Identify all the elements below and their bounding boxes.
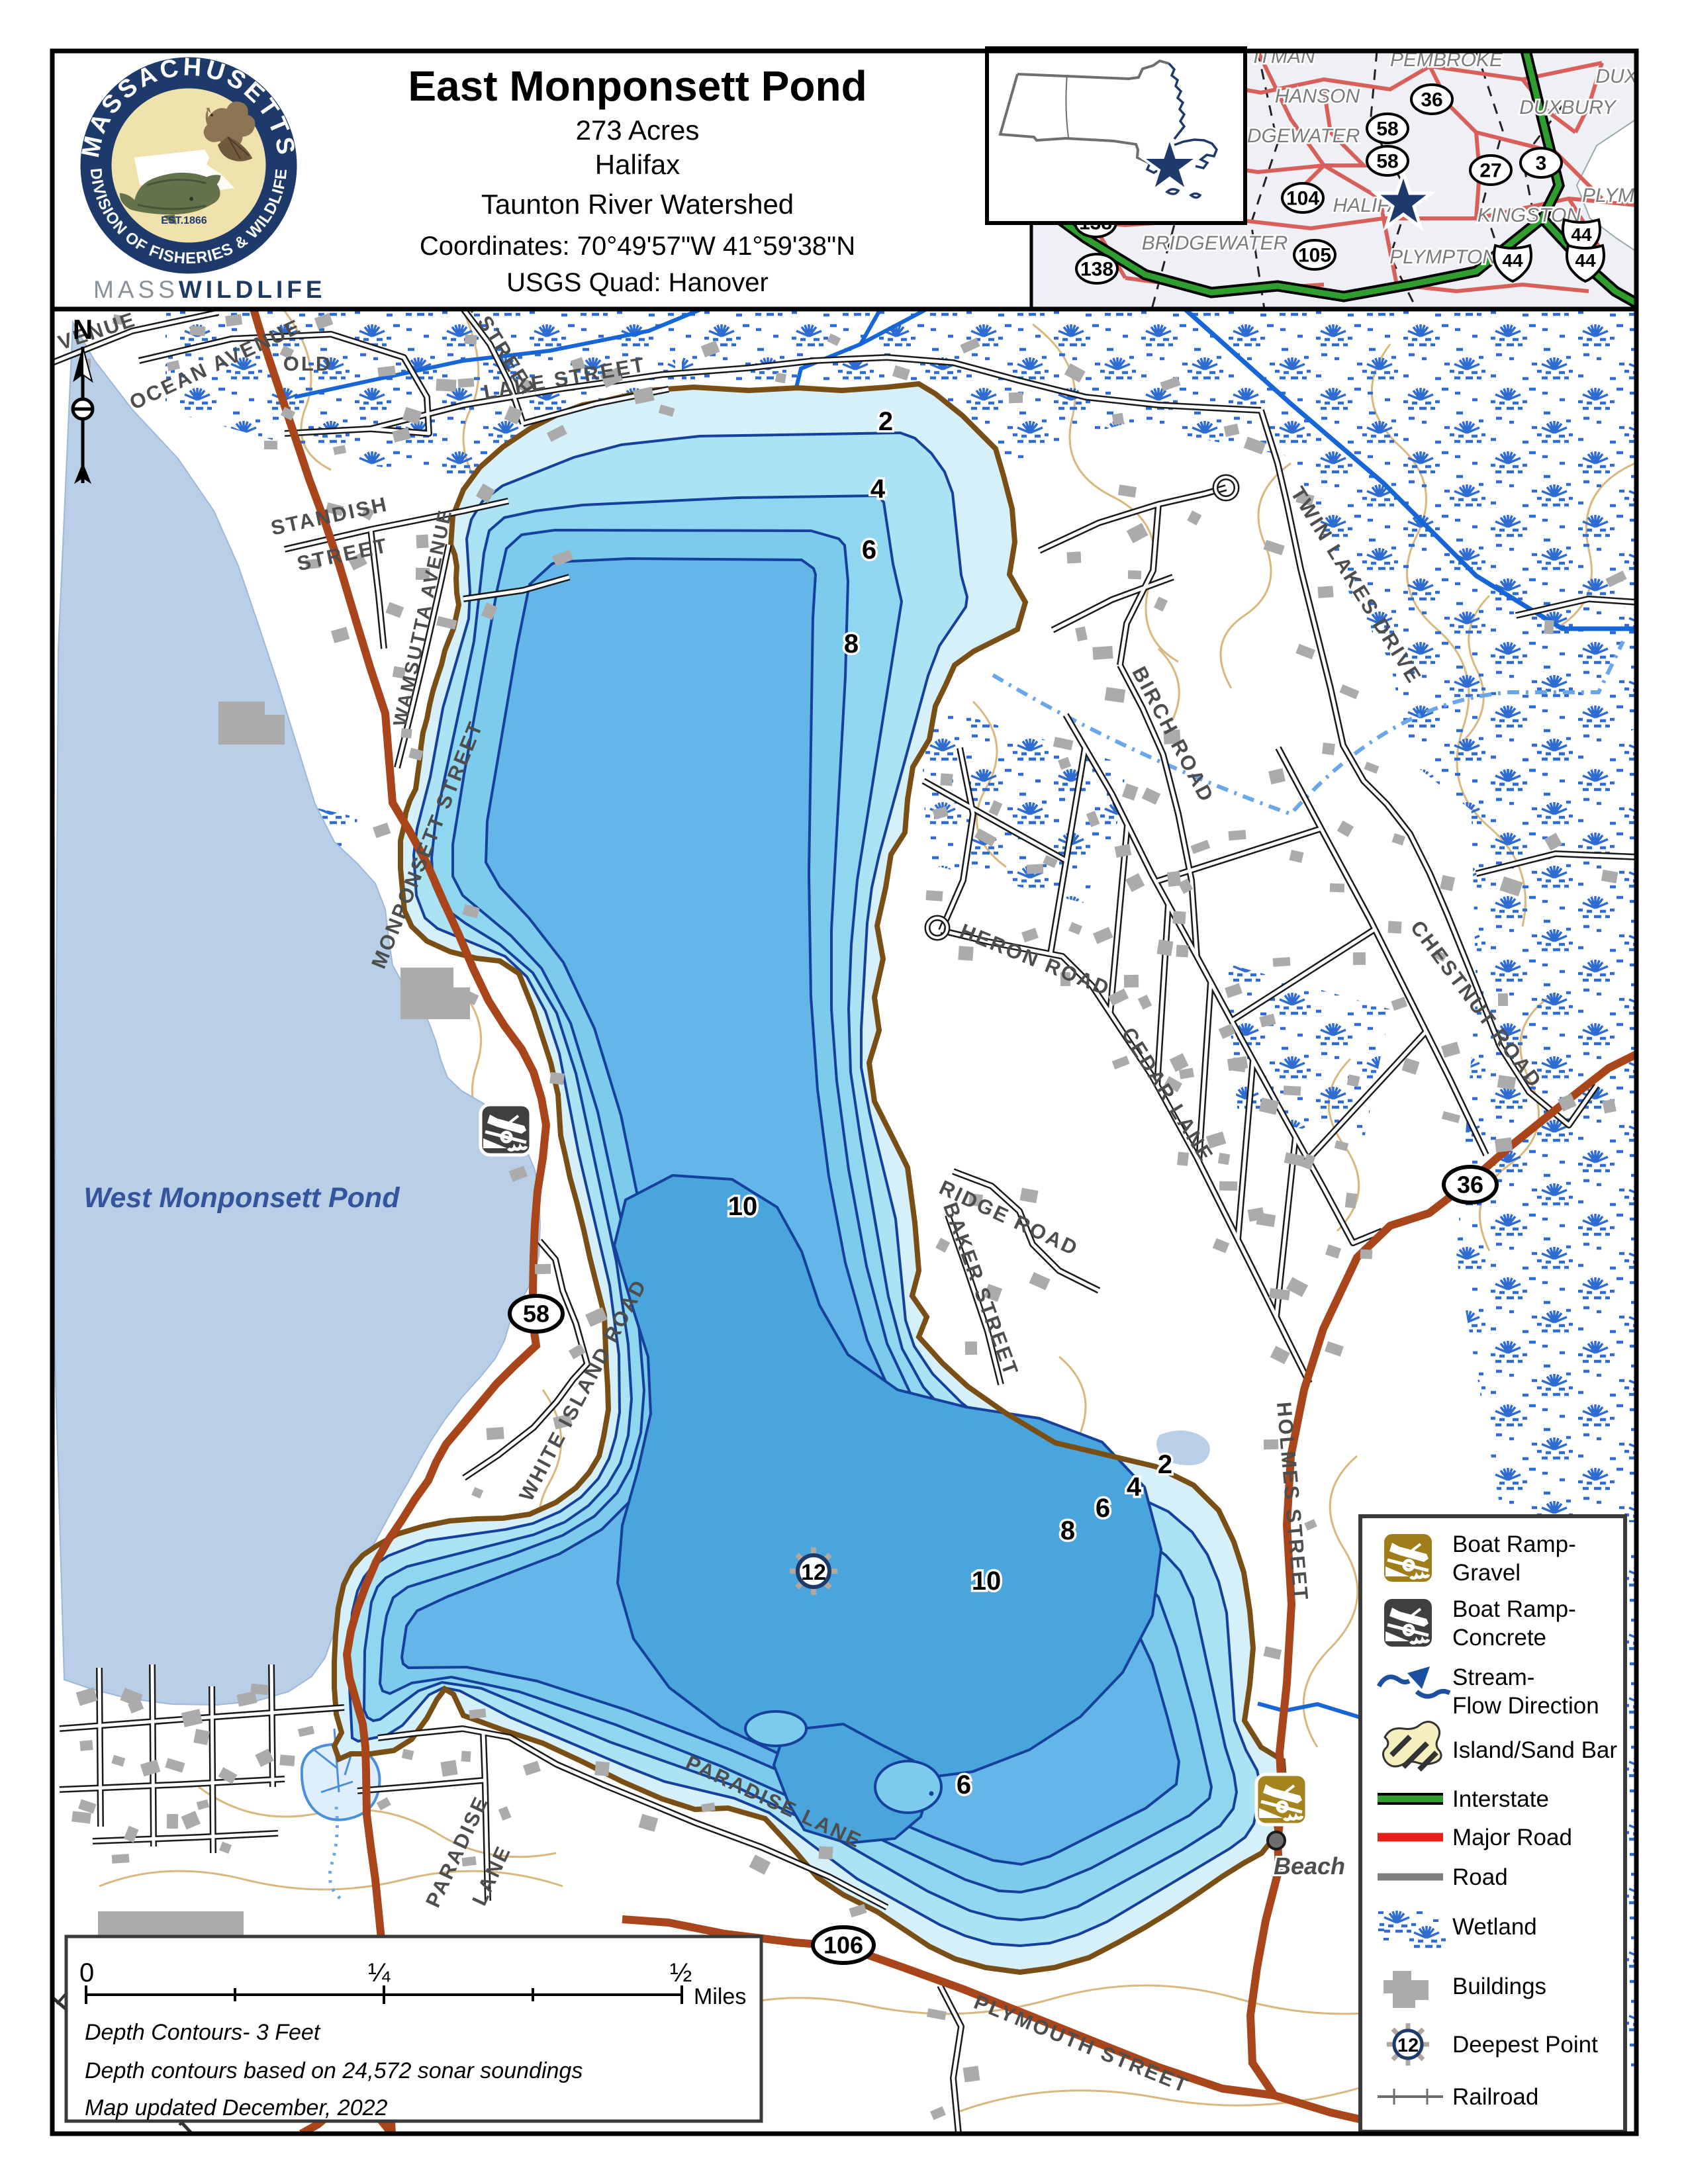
svg-text:Coordinates: 70°49'57"W 41°59': Coordinates: 70°49'57"W 41°59'38"N [420,232,855,261]
svg-text:Depth contours based on 24,572: Depth contours based on 24,572 sonar sou… [85,2058,583,2083]
svg-text:44: 44 [1571,224,1592,245]
svg-text:IDGEWATER: IDGEWATER [1242,125,1360,147]
svg-text:Deepest Point: Deepest Point [1452,2032,1598,2058]
svg-text:Halifax: Halifax [595,149,680,180]
svg-text:44: 44 [1502,250,1523,271]
svg-text:Island/Sand Bar: Island/Sand Bar [1452,1737,1617,1763]
svg-text:2: 2 [878,407,893,436]
svg-text:10: 10 [972,1567,1002,1596]
svg-text:8: 8 [844,629,859,659]
svg-text:Major Road: Major Road [1452,1825,1572,1850]
svg-text:36: 36 [1457,1171,1483,1199]
svg-text:Interstate: Interstate [1452,1786,1549,1812]
svg-text:6: 6 [957,1770,971,1799]
svg-text:½: ½ [670,1958,692,1987]
svg-text:4: 4 [870,475,886,504]
svg-text:EST.1866: EST.1866 [161,215,207,226]
svg-text:6: 6 [862,535,876,565]
svg-text:Buildings: Buildings [1452,1974,1546,1999]
svg-text:Wetland: Wetland [1452,1914,1537,1940]
svg-text:Taunton River Watershed: Taunton River Watershed [481,189,794,220]
svg-text:105: 105 [1298,245,1331,267]
svg-text:Boat Ramp-: Boat Ramp- [1452,1531,1576,1557]
svg-text:12: 12 [801,1560,826,1585]
svg-text:N: N [73,314,93,345]
svg-text:Gravel: Gravel [1452,1560,1521,1586]
svg-text:BRIDGEWATER: BRIDGEWATER [1142,232,1288,254]
svg-text:58: 58 [1376,118,1398,140]
svg-text:Boat Ramp-: Boat Ramp- [1452,1596,1576,1622]
svg-text:MASSWILDLIFE: MASSWILDLIFE [93,276,326,303]
svg-text:PLYMPTON: PLYMPTON [1389,246,1497,268]
svg-text:10: 10 [728,1192,758,1221]
svg-text:8: 8 [1060,1516,1075,1545]
svg-text:138: 138 [1080,259,1113,281]
svg-text:Concrete: Concrete [1452,1625,1546,1651]
svg-text:Road: Road [1452,1864,1508,1890]
svg-text:106: 106 [823,1932,863,1959]
svg-text:West Monponsett Pond: West Monponsett Pond [84,1182,400,1214]
svg-text:¼: ¼ [368,1958,391,1987]
svg-text:Railroad: Railroad [1452,2084,1538,2110]
svg-text:Stream-: Stream- [1452,1664,1534,1690]
svg-text:2: 2 [1158,1450,1172,1479]
svg-text:58: 58 [523,1300,549,1328]
svg-text:58: 58 [1376,151,1398,173]
svg-text:USGS Quad: Hanover: USGS Quad: Hanover [506,268,769,297]
svg-text:Miles: Miles [694,1984,746,2009]
svg-text:0: 0 [79,1958,94,1987]
svg-text:HANSON: HANSON [1275,85,1360,107]
svg-text:4: 4 [1127,1473,1142,1502]
svg-text:104: 104 [1286,188,1319,210]
svg-text:27: 27 [1479,160,1501,182]
svg-text:DUXBURY: DUXBURY [1519,97,1617,118]
svg-text:6: 6 [1096,1494,1110,1523]
svg-text:Flow Direction: Flow Direction [1452,1693,1599,1719]
svg-text:Beach: Beach [1274,1852,1345,1880]
svg-text:273 Acres: 273 Acres [576,114,700,146]
svg-text:36: 36 [1421,89,1442,111]
svg-text:OLD: OLD [283,352,332,375]
svg-text:Map updated December, 2022: Map updated December, 2022 [85,2095,388,2120]
svg-text:3: 3 [1536,153,1547,175]
svg-text:Depth Contours- 3 Feet: Depth Contours- 3 Feet [85,2020,321,2045]
svg-text:East Monponsett Pond: East Monponsett Pond [408,62,867,110]
svg-text:12: 12 [1397,2035,1419,2056]
svg-text:44: 44 [1575,250,1596,271]
